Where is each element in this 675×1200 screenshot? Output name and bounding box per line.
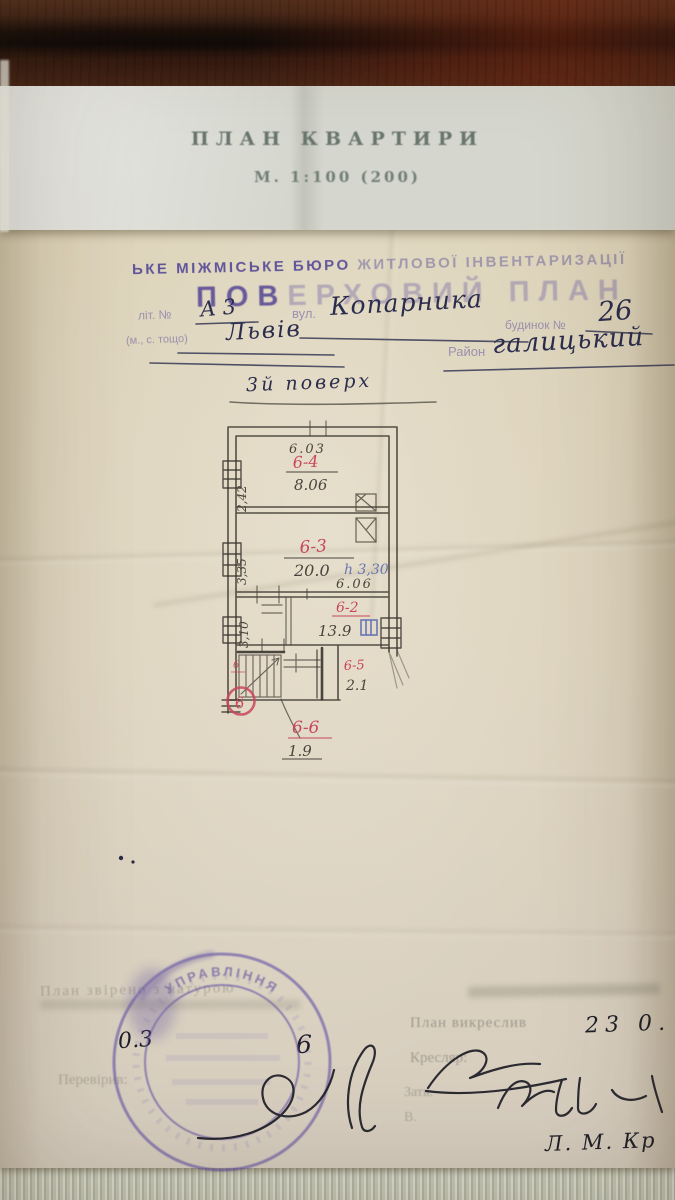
dim-left-3: 3,10 [237, 621, 251, 648]
room-id: 6-2 [336, 600, 359, 616]
ink-underlines [150, 322, 674, 404]
corner-mark: 6 [233, 660, 240, 671]
stairs [239, 655, 281, 697]
plan-details [257, 421, 409, 738]
flue-symbols [356, 494, 376, 542]
room-area: 8.06 [294, 476, 328, 494]
ink-dots [119, 856, 135, 864]
room-area: 2.1 [345, 678, 368, 694]
signature-stroke [498, 1076, 662, 1116]
photo-of-floor-plan-document: ПЛАН КВАРТИРИ М. 1:100 (200) ЬКЕ МІЖМІСЬ… [0, 0, 675, 1200]
room-area: 1.9 [288, 742, 312, 760]
room-area: 20.0 [293, 561, 330, 580]
dim-mid: 6.06 [336, 577, 373, 592]
dim-left-2: 3,35 [235, 558, 249, 585]
room-id: 6-4 [292, 452, 319, 472]
radiator-symbol-blue [361, 620, 377, 635]
drawing-overlay: 6.03 6-4 8.06 6-3 20.0 h 3,30 6.06 6-2 1… [0, 0, 675, 1200]
room-id: 6-5 [343, 658, 365, 674]
room-height-blue: h 3,30 [344, 562, 389, 578]
svg-text:УПРАВЛІННЯ: УПРАВЛІННЯ [162, 964, 282, 997]
stamp-ring-text: УПРАВЛІННЯ [162, 964, 282, 997]
room-area: 13.9 [318, 622, 352, 640]
signature-stroke [426, 1051, 566, 1094]
dim-left-1: 2,42 [235, 485, 249, 513]
apartment-number: 6 [233, 693, 246, 712]
room-id: 6-6 [292, 718, 320, 738]
room-id: 6-3 [299, 536, 328, 558]
plan-labels: 6.03 6-4 8.06 6-3 20.0 h 3,30 6.06 6-2 1… [228, 442, 389, 760]
signature-stroke [348, 1046, 375, 1131]
